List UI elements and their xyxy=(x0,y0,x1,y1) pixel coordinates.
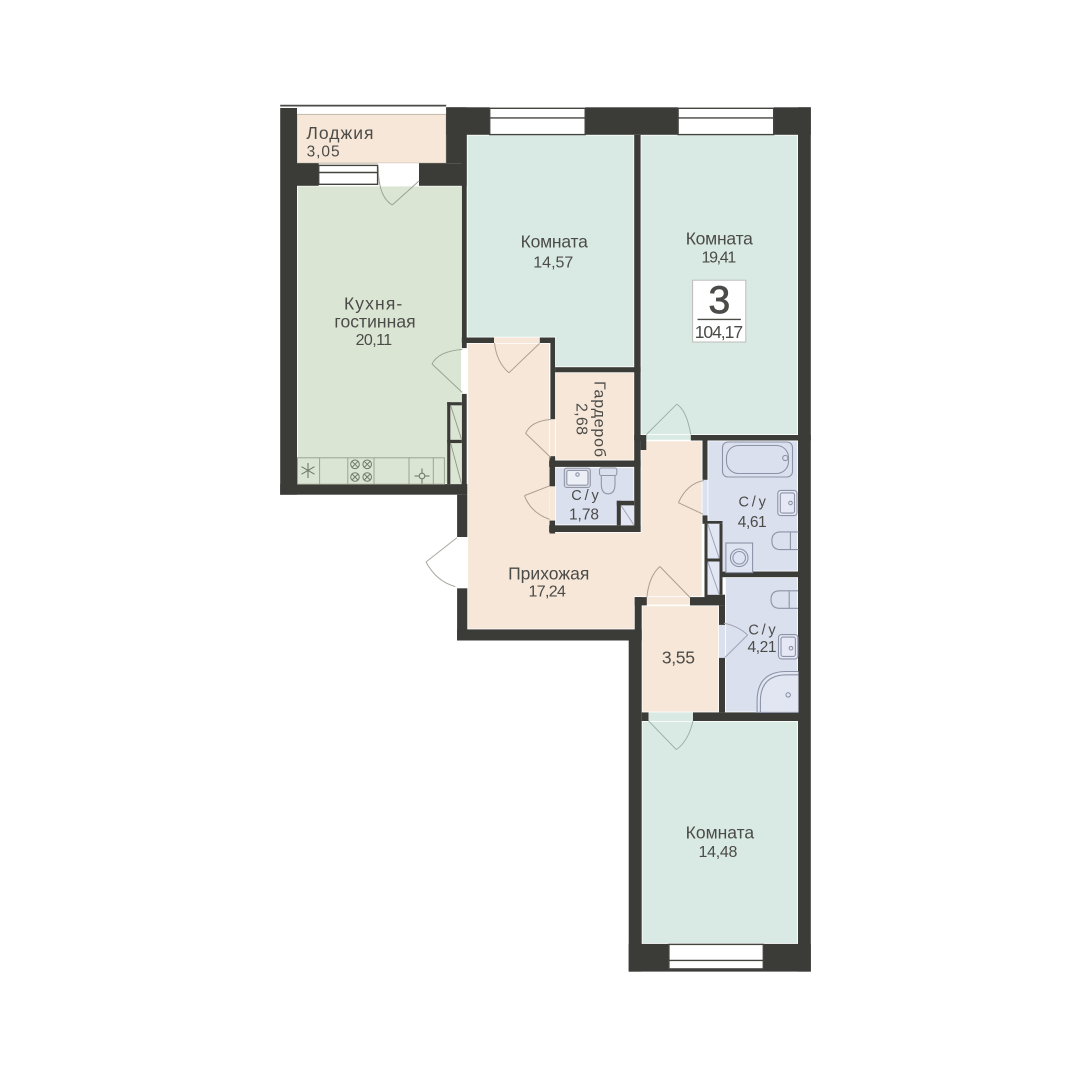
svg-text:2,68: 2,68 xyxy=(573,403,590,435)
svg-text:Комната: Комната xyxy=(521,232,588,252)
svg-text:17,24: 17,24 xyxy=(529,583,566,600)
svg-text:14,57: 14,57 xyxy=(533,254,573,271)
svg-text:3,55: 3,55 xyxy=(662,648,695,668)
svg-text:С/у: С/у xyxy=(739,495,767,511)
svg-text:С/у: С/у xyxy=(748,623,776,639)
svg-text:Гардероб: Гардероб xyxy=(591,381,608,457)
svg-text:Прихожая: Прихожая xyxy=(508,563,589,583)
svg-text:гостинная: гостинная xyxy=(334,312,415,332)
svg-text:3,05: 3,05 xyxy=(307,144,340,161)
svg-text:104,17: 104,17 xyxy=(695,322,743,342)
svg-text:4,61: 4,61 xyxy=(738,514,767,531)
svg-text:19,41: 19,41 xyxy=(702,249,737,266)
svg-text:Комната: Комната xyxy=(686,823,755,843)
svg-text:3: 3 xyxy=(708,279,730,322)
svg-text:4,21: 4,21 xyxy=(747,639,776,656)
svg-text:14,48: 14,48 xyxy=(699,844,738,861)
svg-text:1,78: 1,78 xyxy=(569,507,599,524)
svg-text:20,11: 20,11 xyxy=(356,332,393,349)
svg-text:Лоджия: Лоджия xyxy=(306,123,373,143)
svg-text:Кухня-: Кухня- xyxy=(344,293,402,313)
svg-text:С/у: С/у xyxy=(571,488,599,504)
svg-text:Комната: Комната xyxy=(686,229,753,249)
